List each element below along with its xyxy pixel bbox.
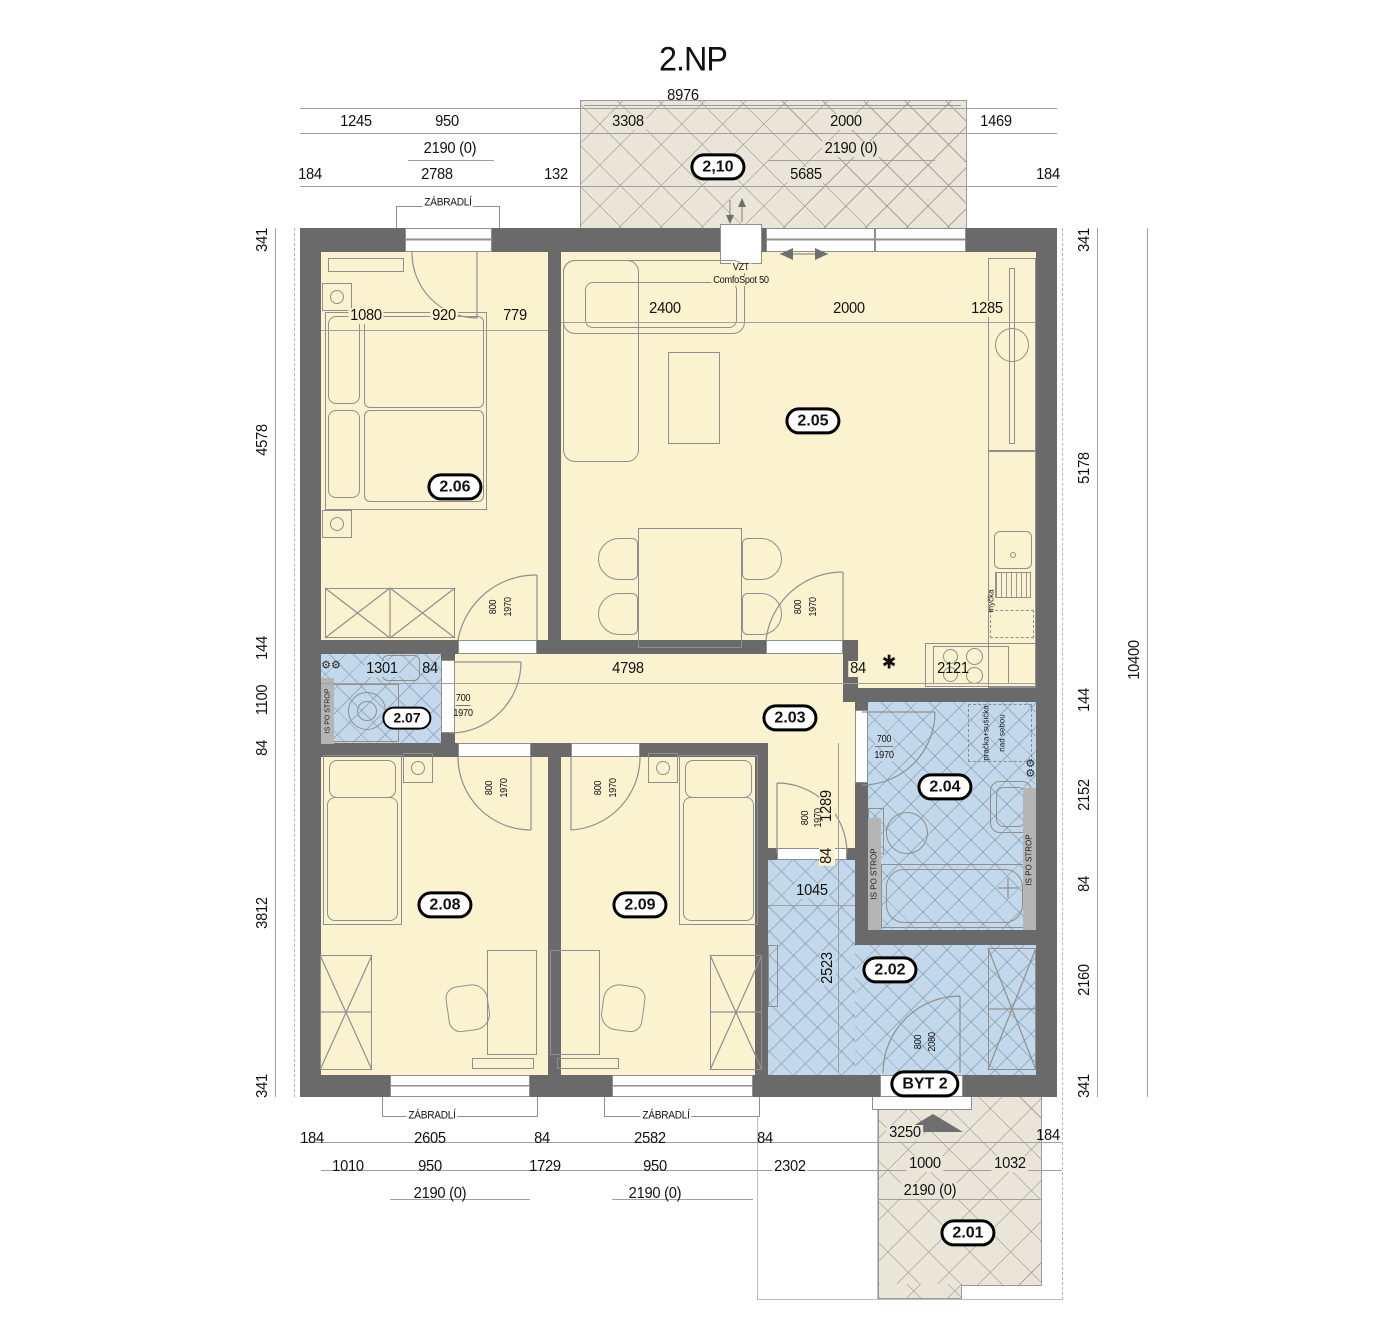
dim-line bbox=[321, 330, 548, 331]
dim-r5: 84 bbox=[1077, 876, 1093, 892]
dim-r4: 2152 bbox=[1077, 779, 1093, 811]
dim-2523: 2523 bbox=[820, 950, 836, 985]
dim-line bbox=[1097, 228, 1098, 1097]
dim-line bbox=[321, 683, 1036, 684]
dim-84-hall: 84 bbox=[819, 846, 835, 866]
dim-b1d: 2582 bbox=[634, 1131, 666, 1147]
slide-arrow-right-head bbox=[815, 248, 828, 260]
dim-206a: 1080 bbox=[348, 308, 383, 324]
floor-plan-canvas: 2.NP 8976 1245 950 3308 2000 1469 2190 (… bbox=[0, 0, 1380, 1320]
dim-midd: 84 bbox=[848, 661, 868, 677]
dim-205a: 2400 bbox=[647, 301, 682, 317]
dim-t2b: 2190 (0) bbox=[822, 141, 880, 157]
vzt-arrow-up-head bbox=[738, 198, 746, 207]
door-208-width: 800 bbox=[485, 781, 495, 796]
dim-t1a: 1245 bbox=[340, 114, 372, 130]
wardrobe-202-pattern bbox=[988, 948, 1036, 1070]
dim-top-total: 8976 bbox=[667, 88, 699, 104]
door-207-width: 700 bbox=[456, 694, 471, 706]
room-label-203: 2.03 bbox=[762, 704, 817, 731]
dim-t1b: 950 bbox=[435, 114, 459, 130]
room-label-206: 2.06 bbox=[427, 473, 482, 500]
dim-r7: 341 bbox=[1077, 1074, 1093, 1098]
dim-r3: 144 bbox=[1077, 688, 1093, 712]
strop-label-204-left: IS PO STROP bbox=[870, 848, 879, 899]
dim-midc: 4798 bbox=[610, 661, 645, 677]
radiator-icon-204: ⚙⚙ bbox=[1024, 758, 1035, 778]
door-204-height: 1970 bbox=[872, 751, 895, 761]
dim-l5: 84 bbox=[255, 740, 271, 756]
dim-line bbox=[408, 160, 494, 161]
dim-b2c: 1729 bbox=[529, 1159, 561, 1175]
dim-b2a: 1010 bbox=[332, 1159, 364, 1175]
washer-dryer-label-2: nad sebou bbox=[998, 714, 1007, 751]
wardrobe-208-pattern bbox=[320, 955, 372, 1070]
dim-205c: 1285 bbox=[969, 301, 1004, 317]
dim-b1c: 84 bbox=[534, 1131, 550, 1147]
vzt-label-line1: VZT bbox=[731, 263, 751, 273]
dim-midb: 84 bbox=[422, 661, 438, 677]
door-arc-hall-209 bbox=[571, 757, 640, 830]
room-label-209: 2.09 bbox=[612, 891, 667, 918]
dim-b3a: 2190 (0) bbox=[414, 1186, 467, 1202]
dim-b1a: 184 bbox=[300, 1131, 324, 1147]
strop-label-207: IS PO STROP bbox=[325, 689, 332, 734]
dim-line bbox=[300, 133, 1057, 134]
dim-b1e: 84 bbox=[757, 1131, 773, 1147]
dim-206c: 779 bbox=[501, 308, 528, 324]
dim-right-total: 10400 bbox=[1127, 640, 1143, 680]
dim-205b: 2000 bbox=[831, 301, 866, 317]
dim-r6: 2160 bbox=[1077, 964, 1093, 996]
dim-line bbox=[300, 108, 1057, 109]
dim-b1g: 184 bbox=[1036, 1128, 1060, 1144]
dim-r2: 5178 bbox=[1077, 452, 1093, 484]
room-label-207: 2.07 bbox=[382, 707, 431, 730]
room-label-210: 2,10 bbox=[690, 153, 745, 180]
page-title: 2.NP bbox=[659, 41, 727, 80]
wardrobe-206-pattern bbox=[325, 588, 455, 638]
apartment-label-byt2: BYT 2 bbox=[890, 1070, 959, 1097]
room-label-204: 2.04 bbox=[917, 773, 972, 800]
dim-line bbox=[275, 228, 276, 1097]
dim-mide: 2121 bbox=[937, 661, 969, 677]
defrost-star: ✱ bbox=[880, 654, 898, 673]
door-207-height: 1970 bbox=[453, 709, 472, 719]
room-label-201: 2.01 bbox=[940, 1219, 995, 1246]
dim-t2a: 2190 (0) bbox=[424, 141, 477, 157]
dishwasher-label: myčka bbox=[987, 589, 996, 612]
vzt-arrow-down-head bbox=[726, 215, 734, 224]
dim-b3c: 2190 (0) bbox=[901, 1183, 959, 1199]
dim-line bbox=[878, 1199, 1040, 1200]
door-205-height: 1970 bbox=[809, 597, 819, 616]
railing-label-top: ZÁBRADLÍ bbox=[423, 198, 474, 209]
dim-l1: 341 bbox=[255, 228, 271, 252]
dim-l3: 144 bbox=[255, 636, 271, 660]
washer-dryer-label-1: pračka+sušička bbox=[982, 705, 991, 760]
slide-arrow-left-head bbox=[780, 248, 793, 260]
dim-b2e: 2302 bbox=[772, 1159, 807, 1175]
dim-t1c: 3308 bbox=[609, 114, 646, 130]
dim-t3e: 184 bbox=[1036, 167, 1060, 183]
dim-t3d: 5685 bbox=[787, 167, 824, 183]
dim-206b: 920 bbox=[430, 308, 457, 324]
dim-b2d: 950 bbox=[643, 1159, 667, 1175]
door-208-height: 1970 bbox=[500, 778, 510, 797]
dim-line bbox=[768, 160, 935, 161]
dim-b1f: 3250 bbox=[886, 1125, 923, 1141]
dim-1045: 1045 bbox=[794, 883, 829, 899]
door-209-width: 800 bbox=[594, 781, 604, 796]
radiator-icon-207: ⚙⚙ bbox=[321, 661, 341, 672]
dim-b2b: 950 bbox=[418, 1159, 442, 1175]
door-202-width: 800 bbox=[801, 811, 811, 826]
dim-mida: 1301 bbox=[364, 661, 399, 677]
vzt-label-line2: ComfoSpot 50 bbox=[711, 276, 770, 286]
dim-b3b: 2190 (0) bbox=[629, 1186, 682, 1202]
room-label-205: 2.05 bbox=[785, 407, 840, 434]
door-arc-hall-202 bbox=[777, 783, 847, 853]
door-209-height: 1970 bbox=[609, 778, 619, 797]
dim-r1: 341 bbox=[1077, 228, 1093, 252]
door-entry-height: 2080 bbox=[928, 1032, 938, 1051]
dim-l4: 1100 bbox=[255, 685, 271, 716]
railing-label-bottom-1: ZÁBRADLÍ bbox=[407, 1111, 458, 1122]
door-206-height: 1970 bbox=[504, 597, 514, 616]
dim-l7: 341 bbox=[255, 1074, 271, 1098]
door-entry-width: 800 bbox=[914, 1035, 924, 1050]
linework-overlay bbox=[0, 0, 1380, 1320]
dim-l2: 4578 bbox=[255, 424, 271, 456]
dim-b1b: 2605 bbox=[414, 1131, 446, 1147]
strop-label-204-right: IS PO STROP bbox=[1025, 834, 1034, 885]
dim-line bbox=[561, 322, 1036, 323]
bathtub-faucet-icon bbox=[998, 878, 1018, 898]
dim-line bbox=[768, 905, 855, 906]
wardrobe-209-pattern bbox=[710, 955, 762, 1070]
door-206-width: 800 bbox=[489, 600, 499, 615]
dim-t1e: 1469 bbox=[980, 114, 1012, 130]
room-label-202: 2.02 bbox=[862, 956, 917, 983]
dim-b2g: 1032 bbox=[991, 1156, 1028, 1172]
door-205-width: 800 bbox=[794, 600, 804, 615]
dim-line bbox=[300, 186, 1057, 187]
door-204-width: 700 bbox=[875, 735, 893, 747]
room-label-208: 2.08 bbox=[417, 891, 472, 918]
dim-t3a: 184 bbox=[298, 167, 322, 183]
dim-t3c: 132 bbox=[544, 167, 568, 183]
dim-b2f: 1000 bbox=[906, 1156, 943, 1172]
dim-line bbox=[838, 743, 839, 1072]
dim-line bbox=[1147, 228, 1148, 1097]
dim-l6: 3812 bbox=[255, 897, 271, 929]
dim-t1d: 2000 bbox=[827, 114, 864, 130]
door-arc-205-hall bbox=[766, 572, 843, 640]
door-202-height: 1970 bbox=[814, 808, 824, 827]
dim-t3b: 2788 bbox=[421, 167, 453, 183]
railing-label-bottom-2: ZÁBRADLÍ bbox=[641, 1111, 692, 1122]
